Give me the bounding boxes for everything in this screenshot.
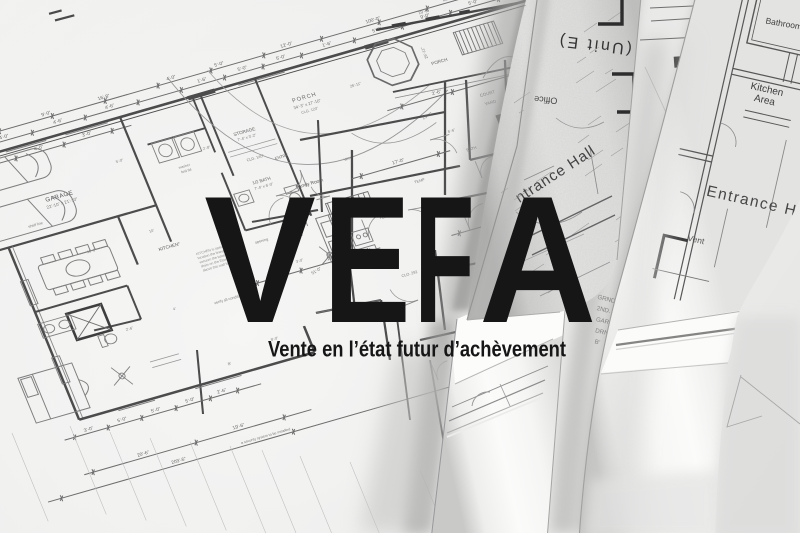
svg-text:A: A: [479, 159, 597, 361]
svg-text:E: E: [323, 159, 410, 361]
svg-text:Office: Office: [534, 94, 558, 106]
svg-text:Vente en l’état futur d’achève: Vente en l’état futur d’achèvement: [268, 337, 566, 362]
svg-text:F: F: [415, 158, 475, 361]
svg-text:V: V: [204, 158, 316, 360]
